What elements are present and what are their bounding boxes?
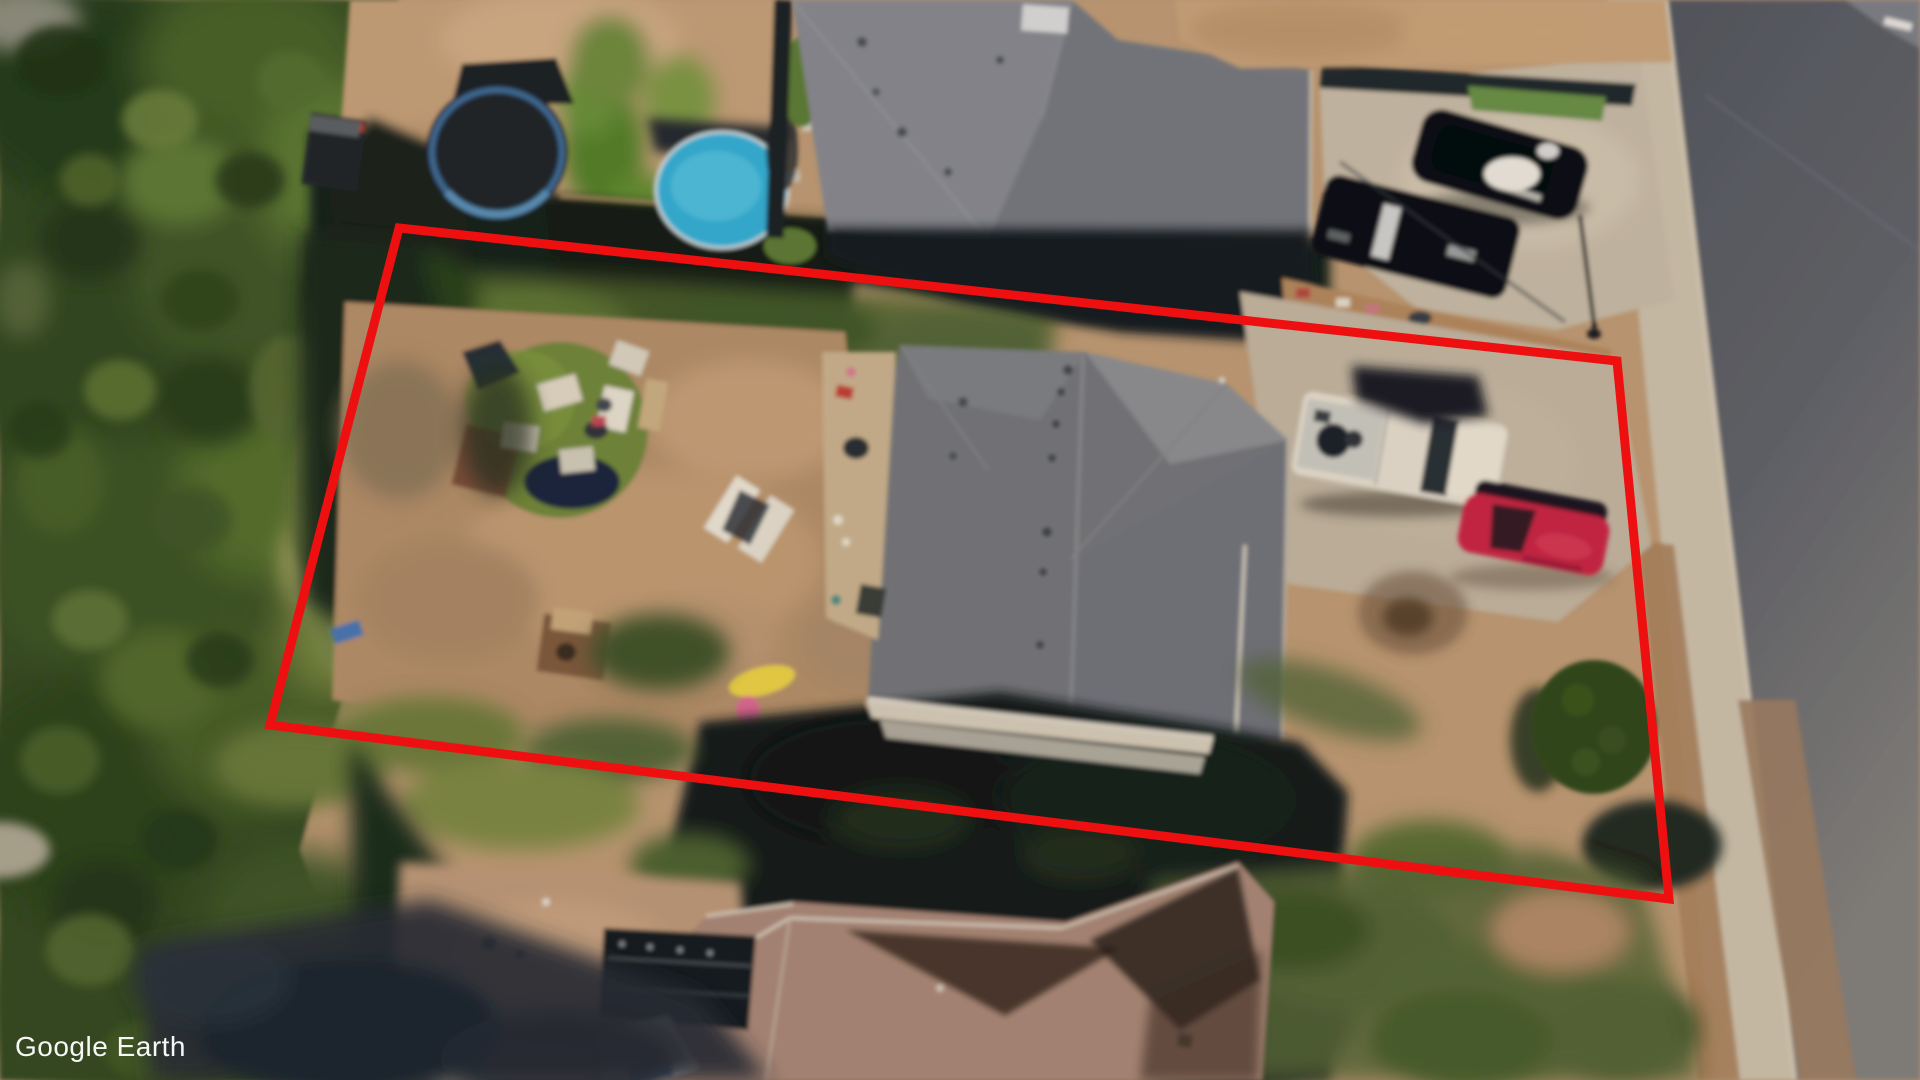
svg-text:Google Earth: Google Earth [15, 1031, 186, 1062]
